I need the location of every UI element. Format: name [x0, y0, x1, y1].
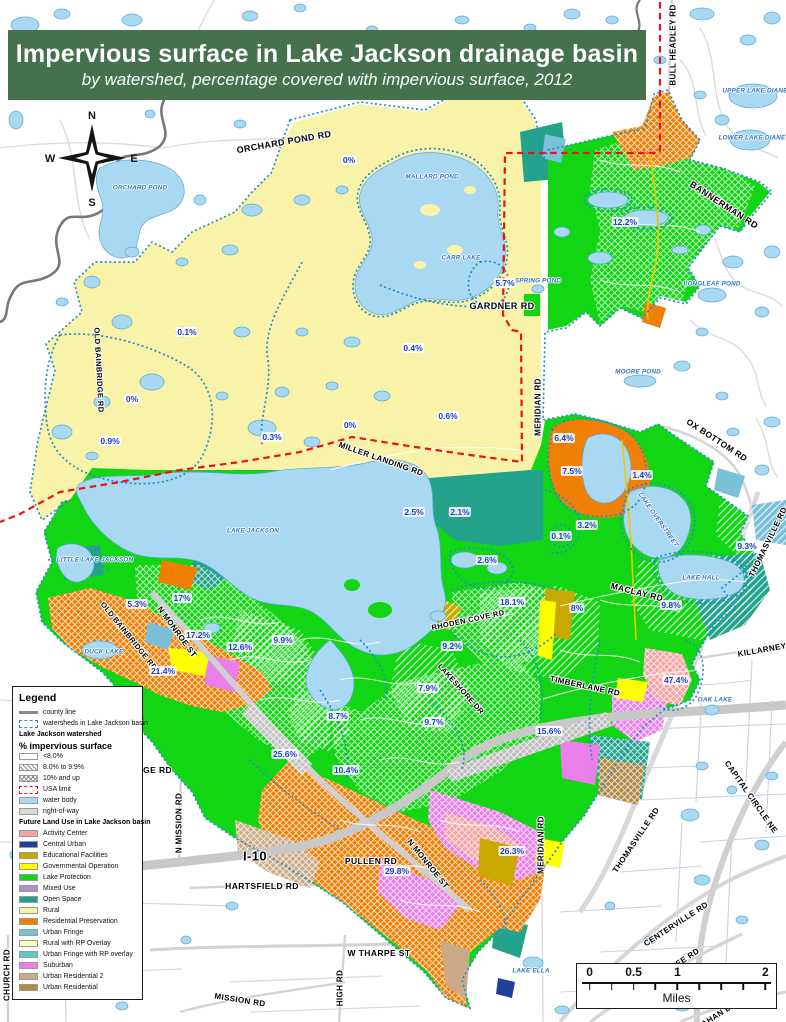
scale-tick — [699, 984, 701, 990]
map-title: Impervious surface in Lake Jackson drain… — [8, 39, 646, 69]
legend-swatch — [19, 808, 38, 816]
legend-swatch — [19, 918, 38, 926]
scale-tick — [743, 984, 745, 990]
legend-label: county line — [43, 709, 76, 716]
legend-item: Urban Fringe — [19, 927, 137, 938]
legend-item: Open Space — [19, 894, 137, 905]
legend-label: Lake Protection — [43, 874, 91, 881]
legend-item: Mixed Use — [19, 883, 137, 894]
legend-swatch — [19, 852, 38, 860]
scale-tick-label: 2 — [762, 965, 769, 979]
legend-item: Lake Protection — [19, 872, 137, 883]
legend-item: Urban Residential — [19, 982, 137, 993]
legend-swatch — [19, 973, 38, 981]
legend-item: right-of-way — [19, 806, 137, 817]
legend-item: Suburban — [19, 960, 137, 971]
legend-items: county linewatersheds in Lake Jackson ba… — [19, 707, 137, 993]
scale-tick-label: 1 — [674, 965, 681, 979]
legend-swatch — [19, 896, 38, 904]
legend-label: Open Space — [43, 896, 81, 903]
legend-label: 8.0% to 9.9% — [43, 764, 84, 771]
legend-item: Governmental Operation — [19, 861, 137, 872]
legend-section-header: Future Land Use in Lake Jackson basin — [19, 819, 150, 826]
legend-label: <8.0% — [43, 753, 63, 760]
legend-swatch — [19, 940, 38, 948]
legend-item: Urban Fringe with RP overlay — [19, 949, 137, 960]
scale-tick — [721, 984, 723, 990]
legend-item: Urban Residential 2 — [19, 971, 137, 982]
scale-tick — [633, 984, 635, 990]
legend-label: Mixed Use — [43, 885, 76, 892]
compass-w: W — [45, 153, 56, 165]
compass-e: E — [130, 153, 137, 165]
legend-label: 10% and up — [43, 775, 80, 782]
legend-label: Central Urban — [43, 841, 86, 848]
scale-tick — [611, 984, 613, 990]
legend-swatch — [19, 929, 38, 937]
legend-swatch — [19, 753, 38, 761]
legend-label: Rural — [43, 907, 59, 914]
legend-item: 10% and up — [19, 773, 137, 784]
scale-tick-label: 0.5 — [625, 965, 642, 979]
legend-item: 8.0% to 9.9% — [19, 762, 137, 773]
legend-item: <8.0% — [19, 751, 137, 762]
legend-swatch — [19, 874, 38, 882]
scale-tick-label: 0 — [586, 965, 593, 979]
legend-label: Rural with RP Overlay — [43, 940, 111, 947]
legend-swatch — [19, 775, 38, 783]
legend-item: Rural with RP Overlay — [19, 938, 137, 949]
legend-swatch — [19, 984, 38, 992]
scale-tick — [765, 984, 767, 990]
scale-bar: 00.512 Miles — [576, 963, 777, 1009]
scale-tick — [677, 984, 679, 990]
scale-tick — [589, 984, 591, 990]
legend-label: Urban Residential 2 — [43, 973, 104, 980]
legend-item: USA limit — [19, 784, 137, 795]
legend-item: Activity Center — [19, 828, 137, 839]
legend-title: Legend — [19, 692, 137, 704]
legend-swatch — [19, 720, 38, 728]
legend-label: Urban Fringe with RP overlay — [43, 951, 133, 958]
legend-swatch — [19, 907, 38, 915]
map-subtitle: by watershed, percentage covered with im… — [8, 69, 646, 91]
legend-item: water body — [19, 795, 137, 806]
legend-swatch — [19, 863, 38, 871]
legend-swatch — [19, 841, 38, 849]
legend-item: Future Land Use in Lake Jackson basin — [19, 817, 137, 828]
legend-label: Activity Center — [43, 830, 87, 837]
legend-swatch — [19, 797, 38, 805]
legend-item: Central Urban — [19, 839, 137, 850]
legend-section-header: % impervious surface — [19, 741, 112, 751]
legend-label: right-of-way — [43, 808, 79, 815]
legend-item: Residential Preservation — [19, 916, 137, 927]
legend-item: Educational Facilities — [19, 850, 137, 861]
legend-swatch — [19, 885, 38, 893]
legend-swatch — [19, 711, 38, 713]
legend-label: Governmental Operation — [43, 863, 118, 870]
compass-n: N — [88, 110, 96, 122]
legend-label: water body — [43, 797, 77, 804]
scale-unit: Miles — [582, 991, 771, 1005]
legend-item: % impervious surface — [19, 740, 137, 751]
legend-label: Educational Facilities — [43, 852, 108, 859]
legend-item: county line — [19, 707, 137, 718]
legend-label: Urban Residential — [43, 984, 98, 991]
legend-label: watersheds in Lake Jackson basin — [43, 720, 148, 727]
legend: Legend county linewatersheds in Lake Jac… — [12, 686, 143, 1000]
compass-s: S — [88, 197, 95, 209]
title-banner: Impervious surface in Lake Jackson drain… — [8, 30, 646, 100]
legend-section-header: Lake Jackson watershed — [19, 731, 102, 738]
map-page: N E S W ORCHARD POND RDBULL HEADLEY RDBA… — [0, 0, 786, 1022]
legend-swatch — [19, 764, 38, 772]
legend-item: watersheds in Lake Jackson basin — [19, 718, 137, 729]
legend-label: Suburban — [43, 962, 73, 969]
legend-item: Rural — [19, 905, 137, 916]
scale-tick — [655, 984, 657, 990]
legend-label: Residential Preservation — [43, 918, 118, 925]
legend-swatch — [19, 786, 38, 794]
legend-label: Urban Fringe — [43, 929, 83, 936]
legend-swatch — [19, 830, 38, 838]
legend-swatch — [19, 962, 38, 970]
legend-swatch — [19, 951, 38, 959]
legend-label: USA limit — [43, 786, 71, 793]
legend-item: Lake Jackson watershed — [19, 729, 137, 740]
